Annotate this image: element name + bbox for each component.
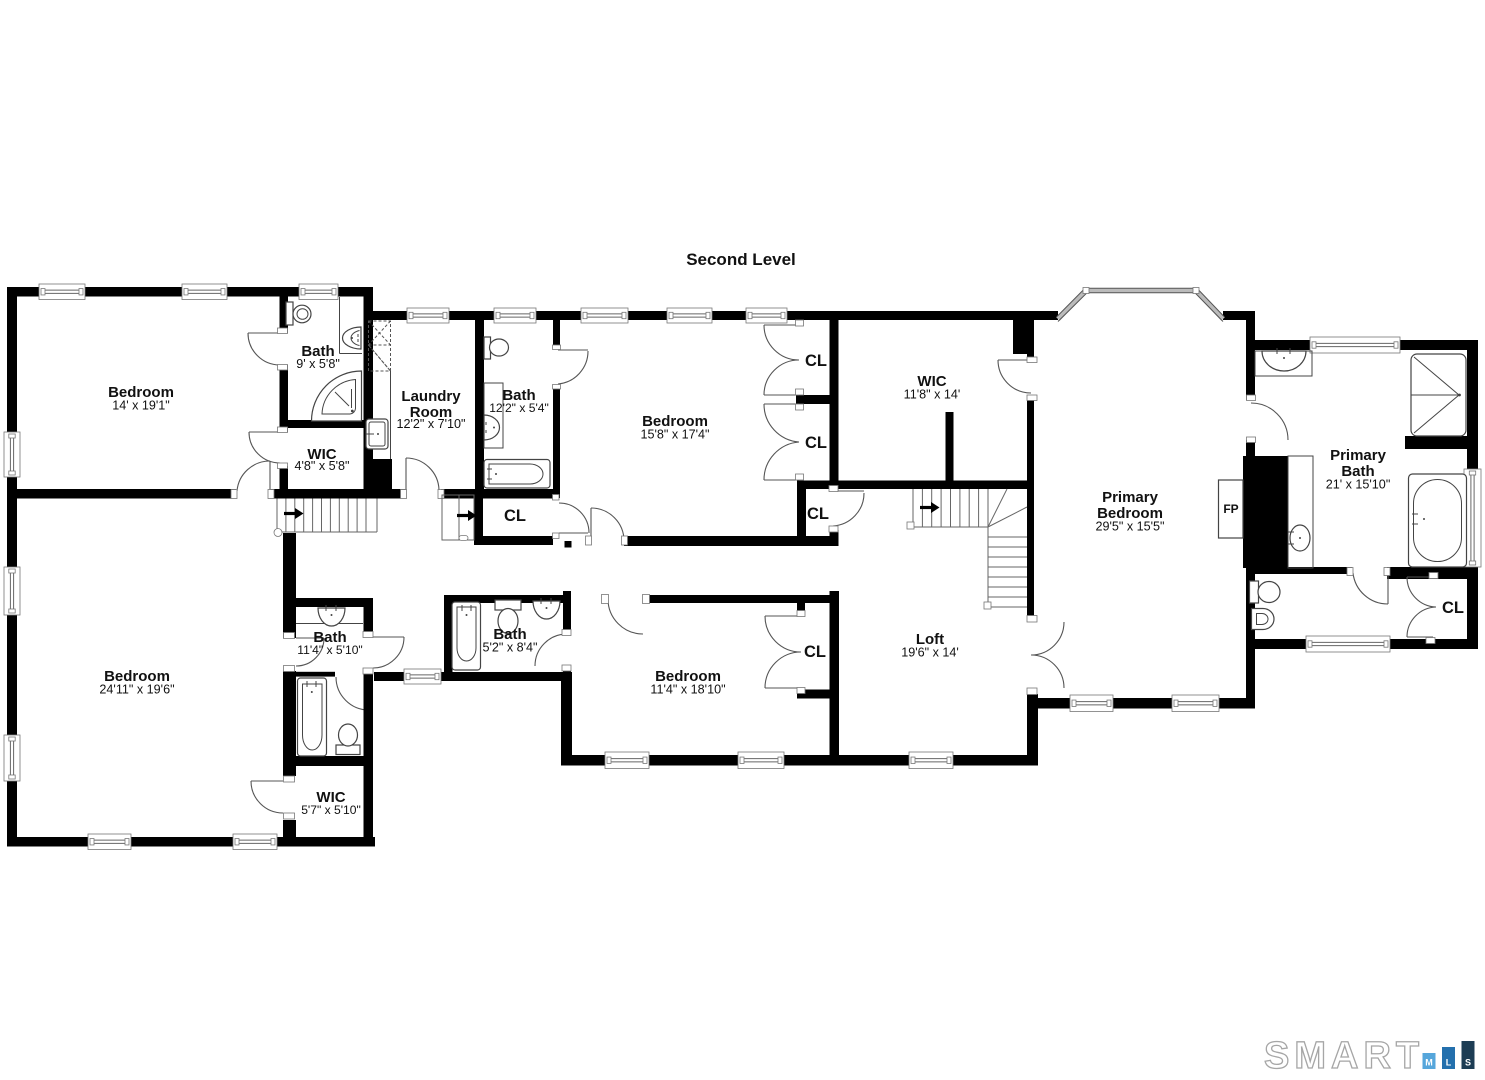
svg-text:FP: FP [1223, 502, 1238, 516]
svg-text:19'6" x 14': 19'6" x 14' [901, 646, 959, 660]
svg-text:SMART: SMART [1264, 1035, 1424, 1077]
svg-text:24'11" x 19'6": 24'11" x 19'6" [99, 683, 174, 697]
svg-text:CL: CL [1442, 599, 1464, 617]
svg-text:CL: CL [807, 505, 829, 523]
svg-text:CL: CL [804, 643, 826, 661]
svg-text:12'2" x 7'10": 12'2" x 7'10" [396, 417, 465, 431]
svg-text:Second Level: Second Level [686, 250, 796, 269]
svg-text:11'8" x 14': 11'8" x 14' [904, 388, 961, 402]
svg-text:15'8" x 17'4": 15'8" x 17'4" [640, 428, 709, 442]
svg-text:S: S [1465, 1058, 1471, 1068]
svg-text:9' x 5'8": 9' x 5'8" [296, 357, 340, 371]
svg-text:Primary: Primary [1102, 489, 1159, 506]
svg-text:Laundry: Laundry [401, 388, 461, 405]
svg-text:4'8" x 5'8": 4'8" x 5'8" [294, 459, 349, 473]
svg-text:11'4" x 18'10": 11'4" x 18'10" [650, 683, 725, 697]
svg-text:CL: CL [504, 507, 526, 525]
svg-text:5'2" x 8'4": 5'2" x 8'4" [482, 641, 537, 655]
svg-text:14' x 19'1": 14' x 19'1" [112, 399, 170, 413]
svg-text:11'4" x 5'10": 11'4" x 5'10" [297, 643, 362, 657]
svg-text:12'2" x 5'4": 12'2" x 5'4" [489, 401, 549, 415]
svg-text:CL: CL [805, 434, 827, 452]
svg-text:CL: CL [805, 352, 827, 370]
svg-text:M: M [1425, 1058, 1433, 1068]
svg-text:21' x 15'10": 21' x 15'10" [1326, 478, 1391, 492]
svg-text:Primary: Primary [1330, 447, 1387, 464]
svg-text:5'7" x 5'10": 5'7" x 5'10" [301, 803, 361, 817]
svg-text:29'5" x 15'5": 29'5" x 15'5" [1095, 520, 1164, 534]
svg-text:L: L [1446, 1058, 1452, 1068]
